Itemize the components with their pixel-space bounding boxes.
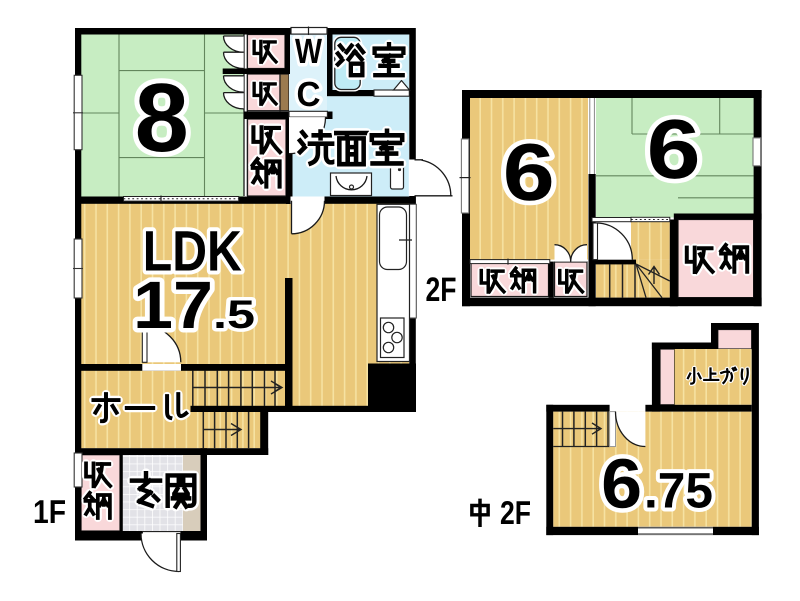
svg-text:2F: 2F: [500, 494, 531, 531]
svg-text:.75: .75: [644, 463, 713, 519]
svg-text:.5: .5: [213, 293, 255, 337]
svg-text:6: 6: [601, 445, 642, 523]
svg-text:6: 6: [503, 128, 555, 218]
svg-text:2F: 2F: [426, 271, 457, 309]
svg-text:8: 8: [135, 63, 189, 172]
svg-text:17: 17: [133, 268, 213, 343]
svg-text:6: 6: [647, 102, 701, 196]
svg-text:W: W: [295, 32, 322, 71]
svg-text:C: C: [297, 75, 321, 114]
svg-text:1F: 1F: [33, 493, 66, 530]
